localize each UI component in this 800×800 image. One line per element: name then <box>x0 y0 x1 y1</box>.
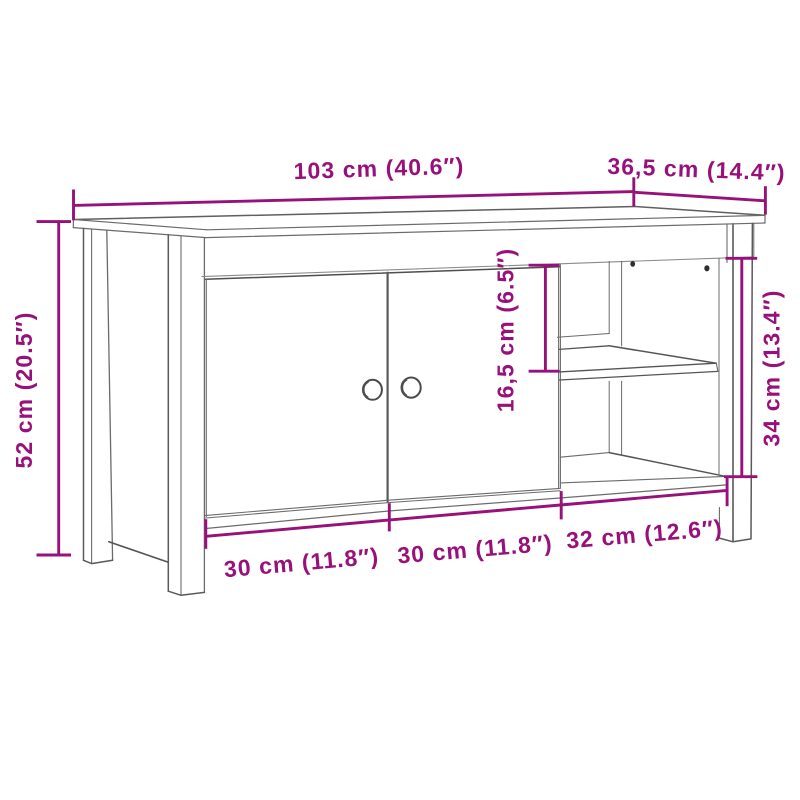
svg-text:34 cm (13.4″): 34 cm (13.4″) <box>758 289 784 446</box>
svg-text:16,5 cm (6.5″): 16,5 cm (6.5″) <box>493 248 519 413</box>
svg-text:52 cm (20.5″): 52 cm (20.5″) <box>11 311 37 468</box>
